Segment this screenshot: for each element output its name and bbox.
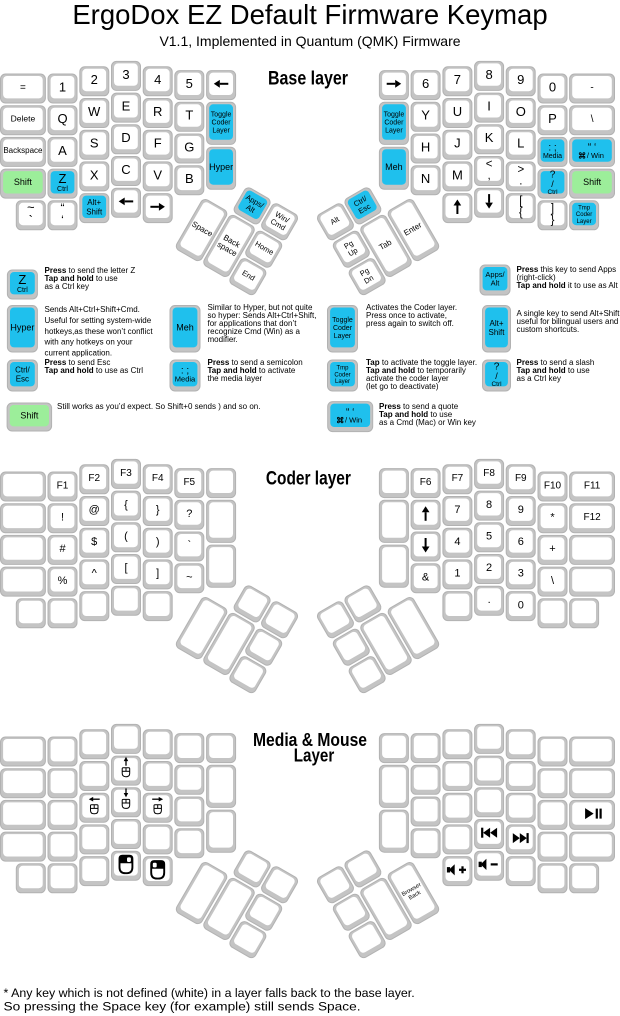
svg-text:Z: Z	[18, 272, 26, 287]
svg-text:ErgoDox EZ Default Firmware Ke: ErgoDox EZ Default Firmware Keymap	[72, 0, 547, 30]
svg-text:Layer: Layer	[385, 128, 403, 135]
svg-text:8: 8	[486, 499, 492, 511]
svg-text:F2: F2	[88, 473, 100, 484]
svg-text:7: 7	[454, 504, 460, 516]
svg-text:/ Win: / Win	[587, 151, 604, 160]
svg-text:3: 3	[518, 568, 524, 580]
svg-text:Alt+: Alt+	[87, 198, 101, 207]
svg-text:-: -	[590, 82, 593, 93]
svg-text:F: F	[154, 136, 162, 151]
svg-text:Coder: Coder	[334, 372, 350, 378]
svg-text:0: 0	[518, 599, 524, 611]
svg-text:the media layer: the media layer	[208, 374, 263, 383]
svg-text:8: 8	[485, 67, 492, 82]
svg-text:#: #	[59, 543, 66, 555]
svg-text:Coder layer: Coder layer	[266, 467, 351, 489]
svg-text:Layer: Layer	[577, 219, 592, 225]
svg-text:as a Ctrl key: as a Ctrl key	[517, 374, 561, 383]
svg-text:9: 9	[518, 504, 524, 516]
svg-text:{: {	[124, 499, 128, 511]
svg-text:R: R	[153, 104, 162, 119]
svg-text:Shift: Shift	[488, 328, 505, 337]
svg-text:Q: Q	[57, 111, 67, 126]
svg-text:Shift: Shift	[20, 411, 39, 421]
svg-text:press again to switch off.: press again to switch off.	[366, 319, 454, 328]
svg-text:Alt+: Alt+	[489, 319, 503, 328]
svg-text:6: 6	[518, 536, 524, 548]
svg-text:Ctrl: Ctrl	[57, 186, 68, 193]
svg-text:>: >	[517, 164, 524, 176]
svg-text:Coder: Coder	[212, 120, 232, 127]
svg-text:E: E	[122, 99, 131, 114]
svg-text:F10: F10	[544, 480, 562, 491]
svg-text:W: W	[88, 104, 101, 119]
svg-text:G: G	[184, 139, 194, 154]
svg-text:D: D	[121, 130, 130, 145]
svg-text:,: ,	[487, 170, 490, 182]
svg-text:Tmp: Tmp	[578, 205, 591, 211]
svg-text:9: 9	[517, 72, 524, 87]
svg-text:O: O	[516, 104, 526, 119]
svg-text:Still works as you’d expect. S: Still works as you’d expect. So Shift+0 …	[57, 402, 260, 411]
svg-text:F11: F11	[584, 480, 601, 491]
svg-text:+: +	[549, 543, 555, 555]
svg-text:): )	[156, 536, 160, 548]
svg-text:=: =	[20, 82, 26, 93]
svg-text:Backspace: Backspace	[3, 146, 43, 155]
svg-text:.: .	[519, 176, 522, 188]
svg-text:F3: F3	[120, 468, 132, 479]
svg-text:F12: F12	[583, 512, 601, 523]
svg-text:A: A	[58, 143, 67, 158]
svg-text:*: *	[550, 511, 555, 523]
svg-text:6: 6	[422, 76, 429, 91]
svg-text:!: !	[61, 511, 64, 523]
svg-text:Layer: Layer	[335, 379, 350, 385]
svg-text:Useful for setting system-wide: Useful for setting system-wide	[45, 316, 152, 325]
svg-text:N: N	[421, 171, 430, 186]
svg-text:\: \	[591, 114, 594, 125]
svg-text:Media: Media	[543, 153, 562, 160]
svg-text:2: 2	[91, 72, 98, 87]
svg-text:{: {	[519, 207, 523, 219]
svg-text:Base layer: Base layer	[268, 68, 348, 90]
svg-text:%: %	[58, 575, 68, 587]
svg-text:Esc: Esc	[16, 375, 29, 384]
svg-text:B: B	[185, 171, 194, 186]
svg-text:Media: Media	[175, 375, 196, 384]
svg-text:M: M	[452, 167, 463, 182]
svg-text:custom shortcuts.: custom shortcuts.	[517, 325, 580, 334]
svg-text:]: ]	[551, 203, 554, 215]
svg-text:F7: F7	[452, 473, 464, 484]
svg-text:* Any key which is not defined: * Any key which is not defined (white) i…	[4, 986, 415, 1000]
svg-text:Ctrl: Ctrl	[491, 381, 502, 388]
svg-text:F8: F8	[483, 468, 495, 479]
svg-text:Ctrl: Ctrl	[17, 287, 28, 294]
svg-text:T: T	[185, 108, 193, 123]
svg-text:1: 1	[454, 568, 460, 580]
svg-text:]: ]	[156, 568, 159, 580]
svg-text:`: `	[187, 540, 191, 552]
svg-text:Tap and hold it to use as Alt: Tap and hold it to use as Alt	[517, 281, 619, 290]
svg-text:J: J	[454, 136, 461, 151]
svg-text:‘: ‘	[61, 213, 64, 227]
svg-text:2: 2	[486, 562, 492, 574]
svg-text:(let go to deactivate): (let go to deactivate)	[366, 382, 439, 391]
svg-text:Tmp: Tmp	[337, 366, 350, 372]
svg-text:as a Cmd (Mac) or Win key: as a Cmd (Mac) or Win key	[379, 418, 476, 427]
svg-text:Layer: Layer	[334, 333, 352, 340]
svg-text:4: 4	[454, 536, 460, 548]
svg-text:Delete: Delete	[11, 114, 36, 124]
svg-text:hotkeys,as these won’t conflic: hotkeys,as these won’t conflict	[45, 327, 154, 336]
svg-text:H: H	[421, 139, 430, 154]
svg-text:5: 5	[486, 531, 492, 543]
svg-text:L: L	[517, 136, 524, 151]
svg-text:}: }	[551, 214, 555, 226]
svg-text:Z: Z	[59, 171, 67, 186]
svg-text:Ctrl/: Ctrl/	[15, 366, 30, 375]
svg-text:/ Win: / Win	[345, 416, 362, 425]
svg-text:7: 7	[454, 72, 461, 87]
svg-text:Shift: Shift	[86, 207, 103, 216]
svg-text:F5: F5	[183, 477, 195, 488]
svg-text:Coder: Coder	[384, 120, 404, 127]
svg-text:4: 4	[154, 72, 161, 87]
svg-text:Toggle: Toggle	[332, 317, 353, 324]
svg-text:^: ^	[92, 568, 98, 580]
svg-text:Alt: Alt	[491, 279, 501, 288]
svg-text:@: @	[89, 504, 100, 516]
svg-text:Coder: Coder	[576, 212, 592, 218]
svg-text:V1.1, Implemented in Quantum (: V1.1, Implemented in Quantum (QMK) Firmw…	[159, 33, 460, 49]
svg-text:X: X	[90, 167, 99, 182]
svg-text:5: 5	[186, 76, 193, 91]
svg-text:~: ~	[186, 571, 192, 583]
svg-text:: ;: : ;	[548, 142, 556, 153]
svg-text:Meh: Meh	[385, 162, 403, 172]
svg-text:I: I	[487, 99, 491, 114]
svg-text:F4: F4	[152, 473, 164, 484]
svg-text:V: V	[153, 167, 162, 182]
svg-text:Layer: Layer	[294, 745, 335, 766]
svg-text:current application.: current application.	[45, 349, 113, 358]
svg-text:Toggle: Toggle	[211, 112, 232, 119]
svg-text:F6: F6	[420, 477, 432, 488]
svg-text:Tap and hold to use as Ctrl: Tap and hold to use as Ctrl	[45, 366, 144, 375]
svg-text:Meh: Meh	[176, 322, 194, 332]
svg-text:.: .	[488, 594, 491, 606]
svg-text:S: S	[90, 136, 99, 151]
svg-text:F9: F9	[515, 473, 527, 484]
svg-text:$: $	[91, 536, 97, 548]
svg-text:Ctrl: Ctrl	[547, 189, 558, 196]
svg-text:Y: Y	[421, 108, 430, 123]
svg-text:Layer: Layer	[212, 128, 230, 135]
svg-text:1: 1	[59, 79, 66, 94]
svg-text:0: 0	[549, 79, 556, 94]
svg-text:Toggle: Toggle	[384, 112, 405, 119]
svg-text:<: <	[486, 159, 493, 171]
svg-text:So pressing the Space key (for: So pressing the Space key (for example) …	[4, 999, 361, 1013]
svg-text:Shift: Shift	[14, 177, 33, 187]
svg-text:`: `	[29, 213, 33, 228]
svg-text:U: U	[453, 104, 462, 119]
svg-text:K: K	[485, 130, 494, 145]
svg-text:Sends Alt+Ctrl+Shift+Cmd.: Sends Alt+Ctrl+Shift+Cmd.	[45, 305, 140, 314]
svg-text:[: [	[124, 562, 127, 574]
svg-text:C: C	[121, 162, 130, 177]
svg-text:F1: F1	[57, 480, 69, 491]
svg-text:Coder: Coder	[333, 325, 353, 332]
svg-text:&: &	[422, 571, 430, 583]
svg-text:?: ?	[186, 508, 192, 520]
svg-text:3: 3	[122, 67, 129, 82]
svg-text:with any hotkeys on your: with any hotkeys on your	[44, 338, 133, 347]
svg-text:modifier.: modifier.	[208, 335, 238, 344]
svg-text:Hyper: Hyper	[10, 322, 34, 332]
svg-text:Shift: Shift	[583, 177, 602, 187]
svg-text:P: P	[548, 111, 557, 126]
svg-text:Hyper: Hyper	[209, 162, 233, 172]
svg-text:as a Ctrl key: as a Ctrl key	[45, 282, 89, 291]
svg-text:}: }	[156, 504, 160, 516]
svg-text:(: (	[124, 531, 128, 543]
